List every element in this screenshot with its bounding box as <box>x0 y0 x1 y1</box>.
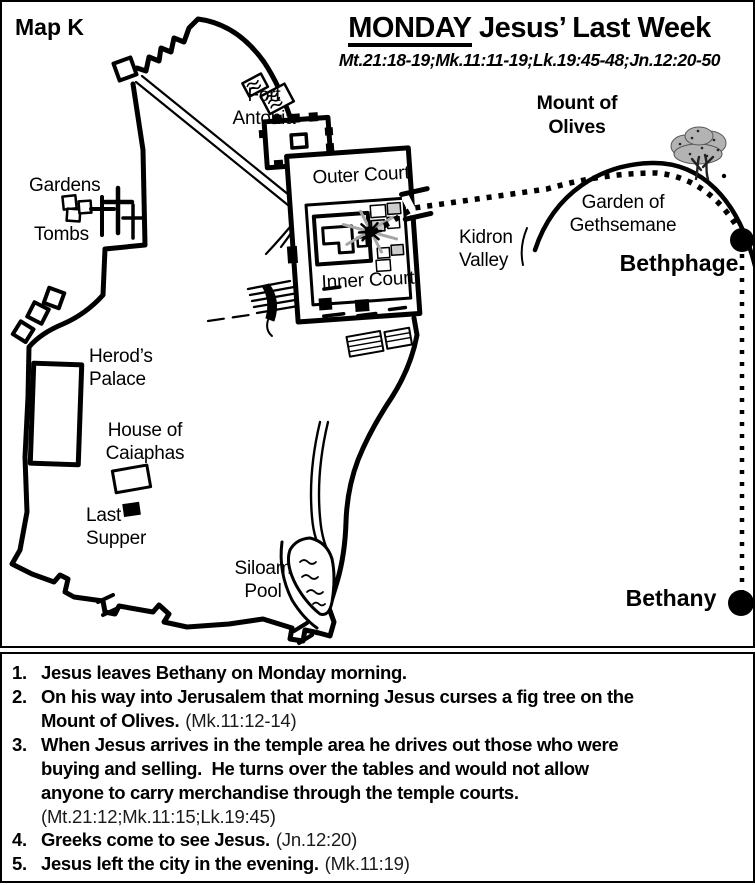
event-item-1: 1. Jesus leaves Bethany on Monday mornin… <box>12 661 745 685</box>
event-number: 5. <box>12 852 41 876</box>
event-reference: (Jn.12:20) <box>276 829 357 850</box>
title-rest: Jesus’ Last Week <box>472 12 711 44</box>
map-code-label: Map K <box>15 14 84 41</box>
label-garden-of-gethsemane: Garden of Gethsemane <box>570 191 677 237</box>
label-last-supper: Last Supper <box>86 504 146 550</box>
event-text: Jesus leaves Bethany on Monday morning. <box>41 662 407 683</box>
label-mount-of-olives: Mount of Olives <box>537 92 618 140</box>
event-text-wrap: Jesus left the city in the evening.(Mk.1… <box>41 852 745 876</box>
kidron-stream-mark <box>522 228 527 265</box>
west-gate-marker <box>287 246 298 264</box>
herods-palace-outline <box>30 363 81 465</box>
event-item-3: 3. When Jesus arrives in the temple area… <box>12 733 745 828</box>
event-item-5: 5. Jesus left the city in the evening.(M… <box>12 852 745 876</box>
label-inner-court: Inner Court <box>321 267 415 295</box>
valley-road <box>311 422 332 558</box>
title-line: MONDAY Jesus’ Last Week <box>332 12 727 47</box>
south-buildings <box>347 328 412 357</box>
event-text-wrap: Greeks come to see Jesus.(Jn.12:20) <box>41 828 745 852</box>
label-siloam-pool: Siloam Pool <box>235 557 292 603</box>
gardens-squares-icon <box>62 195 91 221</box>
fig-tree-icon <box>671 127 726 179</box>
event-number: 3. <box>12 733 41 828</box>
bethany-marker <box>728 590 753 616</box>
title-day: MONDAY <box>348 14 471 47</box>
label-fort-antonia: Fort Antonia <box>232 84 295 130</box>
route-dotted-path <box>374 173 742 592</box>
event-reference: (Mt.21:12;Mk.11:15;Lk.19:45) <box>41 805 745 828</box>
label-kidron-valley: Kidron Valley <box>459 226 513 272</box>
event-text-wrap: When Jesus arrives in the temple area he… <box>41 733 745 828</box>
events-panel: 1. Jesus leaves Bethany on Monday mornin… <box>0 652 755 883</box>
map-panel: Map K MONDAY Jesus’ Last Week Mt.21:18-1… <box>0 0 755 648</box>
label-gardens: Gardens <box>29 174 100 197</box>
title-scripture-references: Mt.21:18-19;Mk.11:11-19;Lk.19:45-48;Jn.1… <box>332 50 727 71</box>
label-tombs: Tombs <box>34 223 89 246</box>
event-text-wrap: Jesus leaves Bethany on Monday morning. <box>41 661 745 685</box>
event-text: On his way into Jerusalem that morning J… <box>41 686 634 731</box>
event-text: Greeks come to see Jesus. <box>41 829 270 850</box>
event-text: Jesus left the city in the evening. <box>41 853 319 874</box>
event-item-4: 4. Greeks come to see Jesus.(Jn.12:20) <box>12 828 745 852</box>
label-house-of-caiaphas: House of Caiaphas <box>106 419 185 465</box>
event-item-2: 2. On his way into Jerusalem that mornin… <box>12 685 745 733</box>
event-number: 1. <box>12 661 41 685</box>
event-text-wrap: On his way into Jerusalem that morning J… <box>41 685 745 733</box>
label-herods-palace: Herod’s Palace <box>89 345 153 391</box>
caiaphas-house-outline <box>112 465 150 493</box>
event-number: 4. <box>12 828 41 852</box>
event-text: When Jesus arrives in the temple area he… <box>41 734 618 803</box>
city-wall <box>12 19 417 641</box>
event-number: 2. <box>12 685 41 733</box>
event-reference: (Mk.11:19) <box>325 853 410 874</box>
label-bethany: Bethany <box>626 584 717 612</box>
page: { "colors": { "ink": "#000000", "paper":… <box>0 0 755 885</box>
label-bethphage: Bethphage <box>620 249 739 277</box>
map-title: MONDAY Jesus’ Last Week Mt.21:18-19;Mk.1… <box>332 12 727 71</box>
event-reference: (Mk.11:12-14) <box>185 710 296 731</box>
